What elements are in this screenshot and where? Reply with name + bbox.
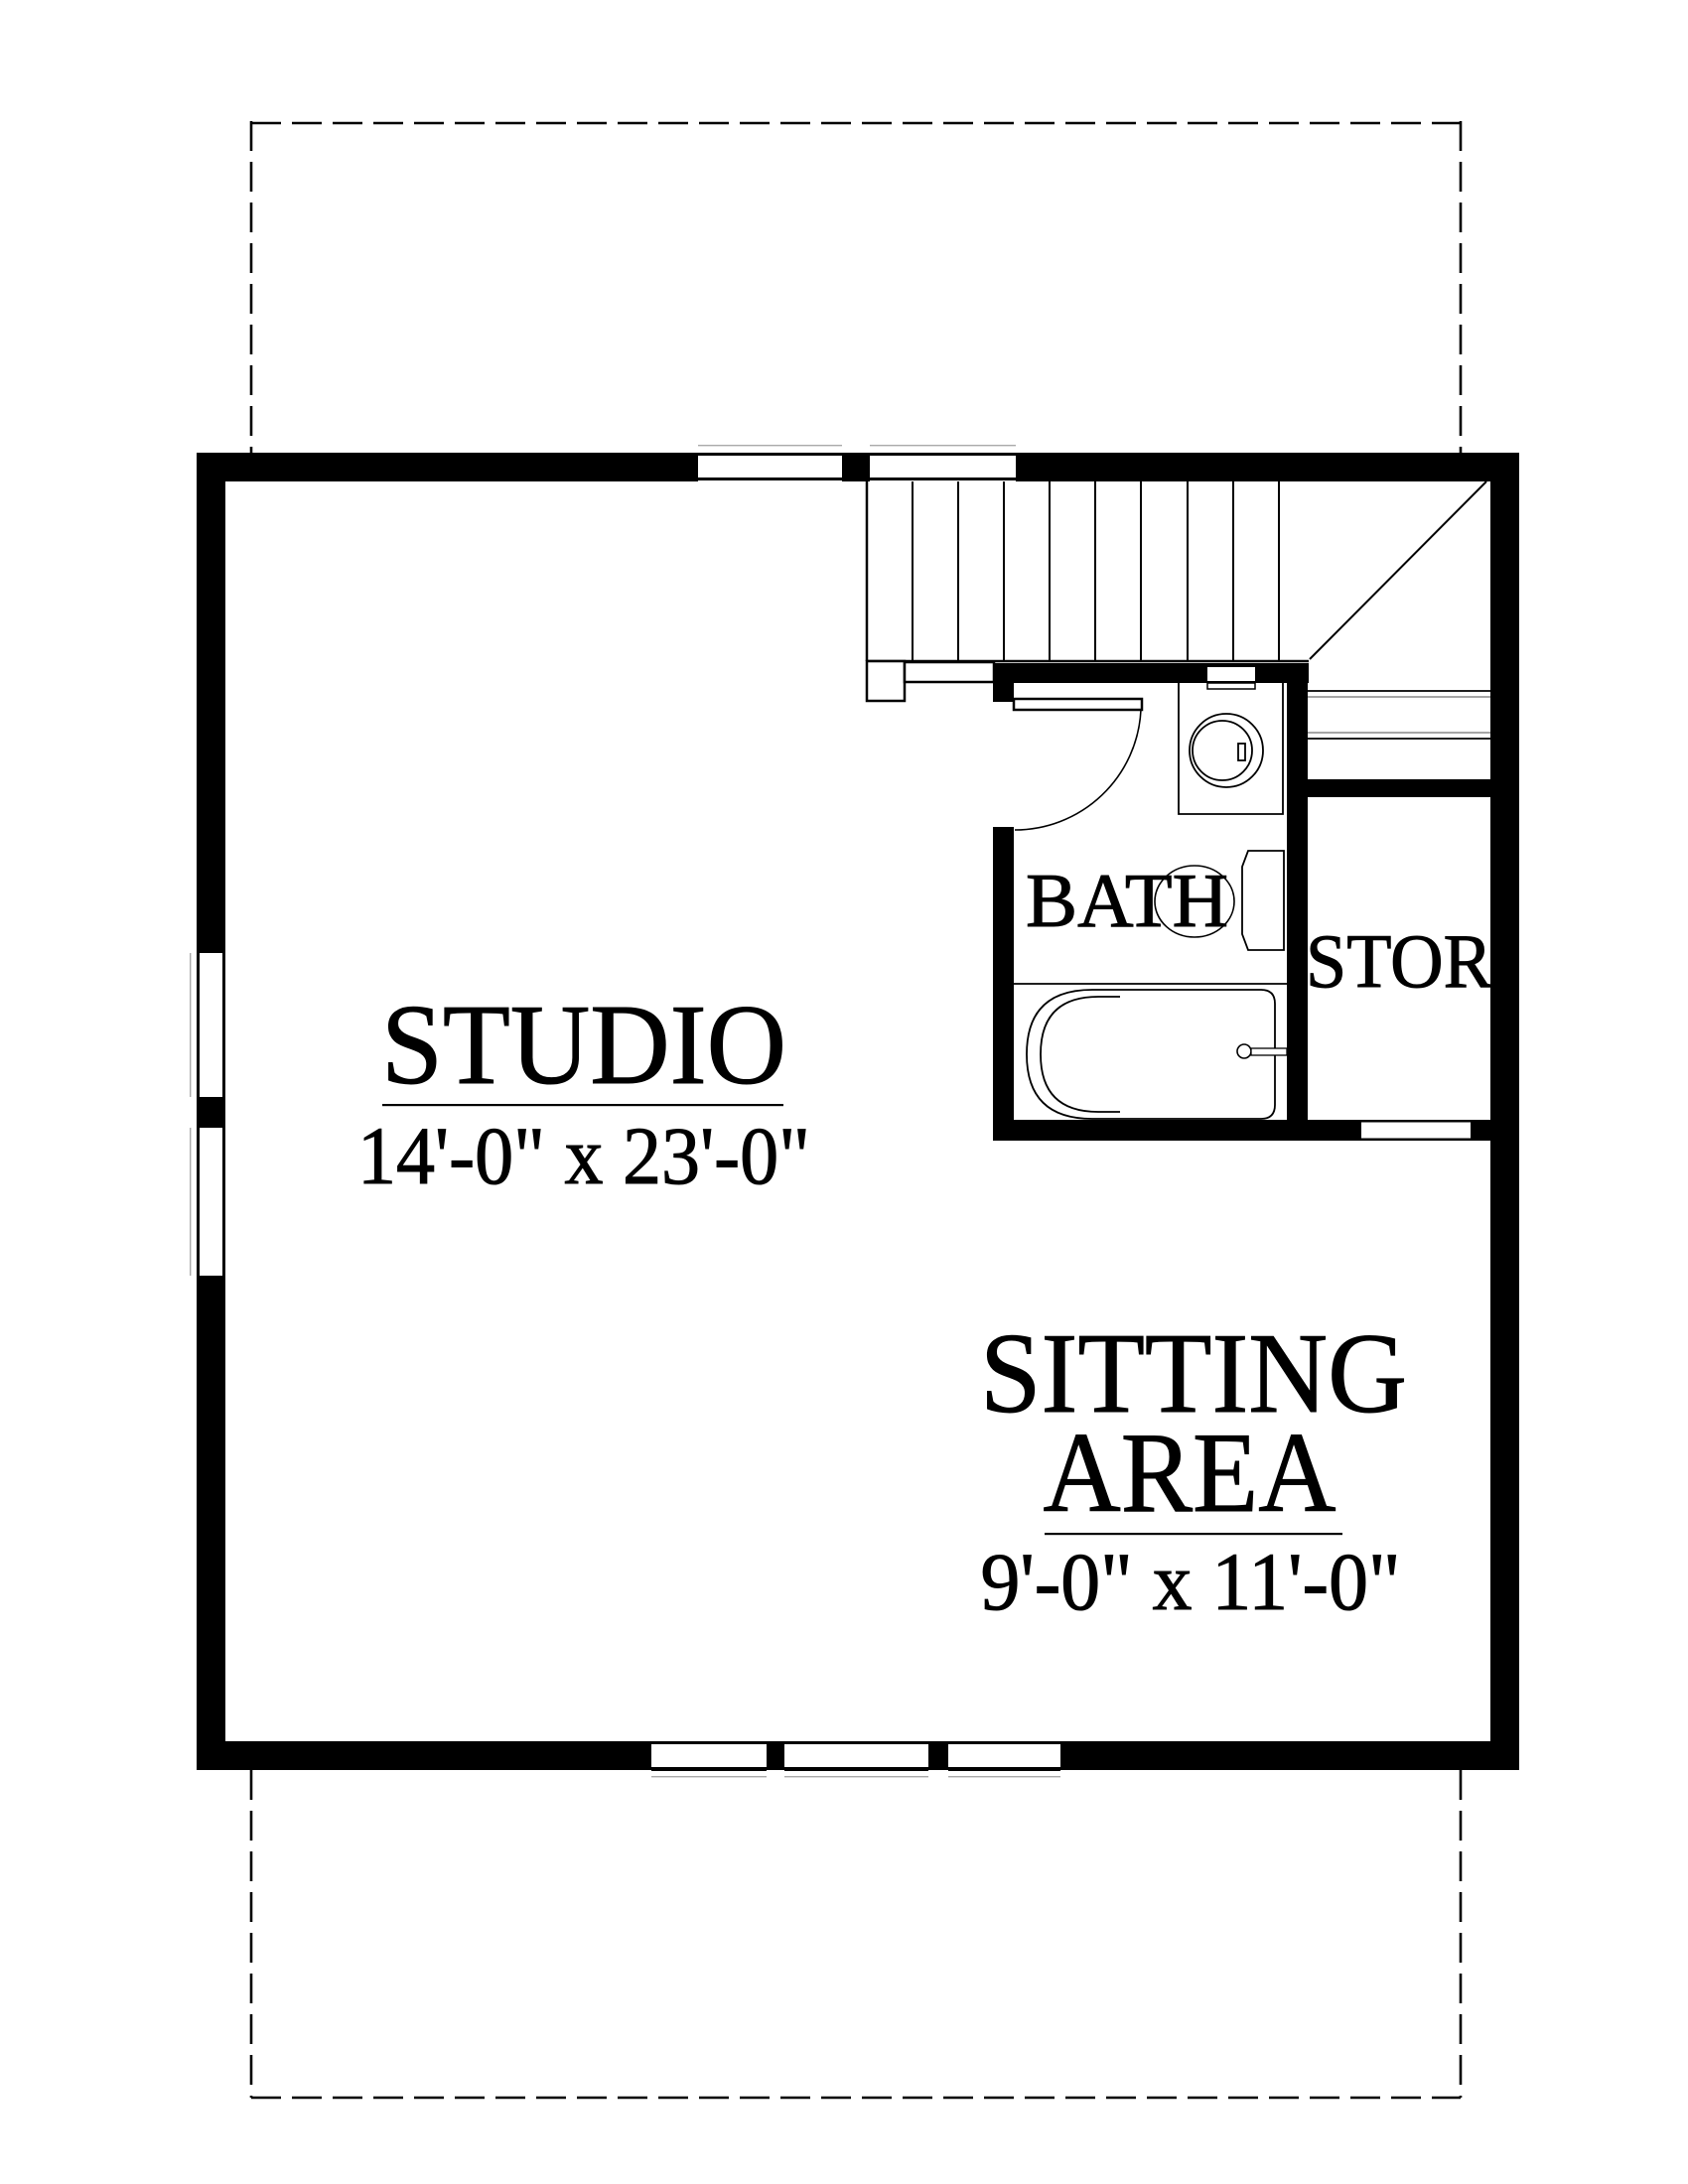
svg-text:14'-0" x 23'-0": 14'-0" x 23'-0" [357, 1110, 810, 1201]
svg-text:9'-0" x 11'-0": 9'-0" x 11'-0" [981, 1536, 1401, 1627]
svg-text:STUDIO: STUDIO [381, 982, 786, 1109]
svg-text:BATH: BATH [1026, 858, 1228, 943]
svg-text:AREA: AREA [1044, 1410, 1336, 1537]
svg-text:STOR: STOR [1306, 918, 1493, 1004]
